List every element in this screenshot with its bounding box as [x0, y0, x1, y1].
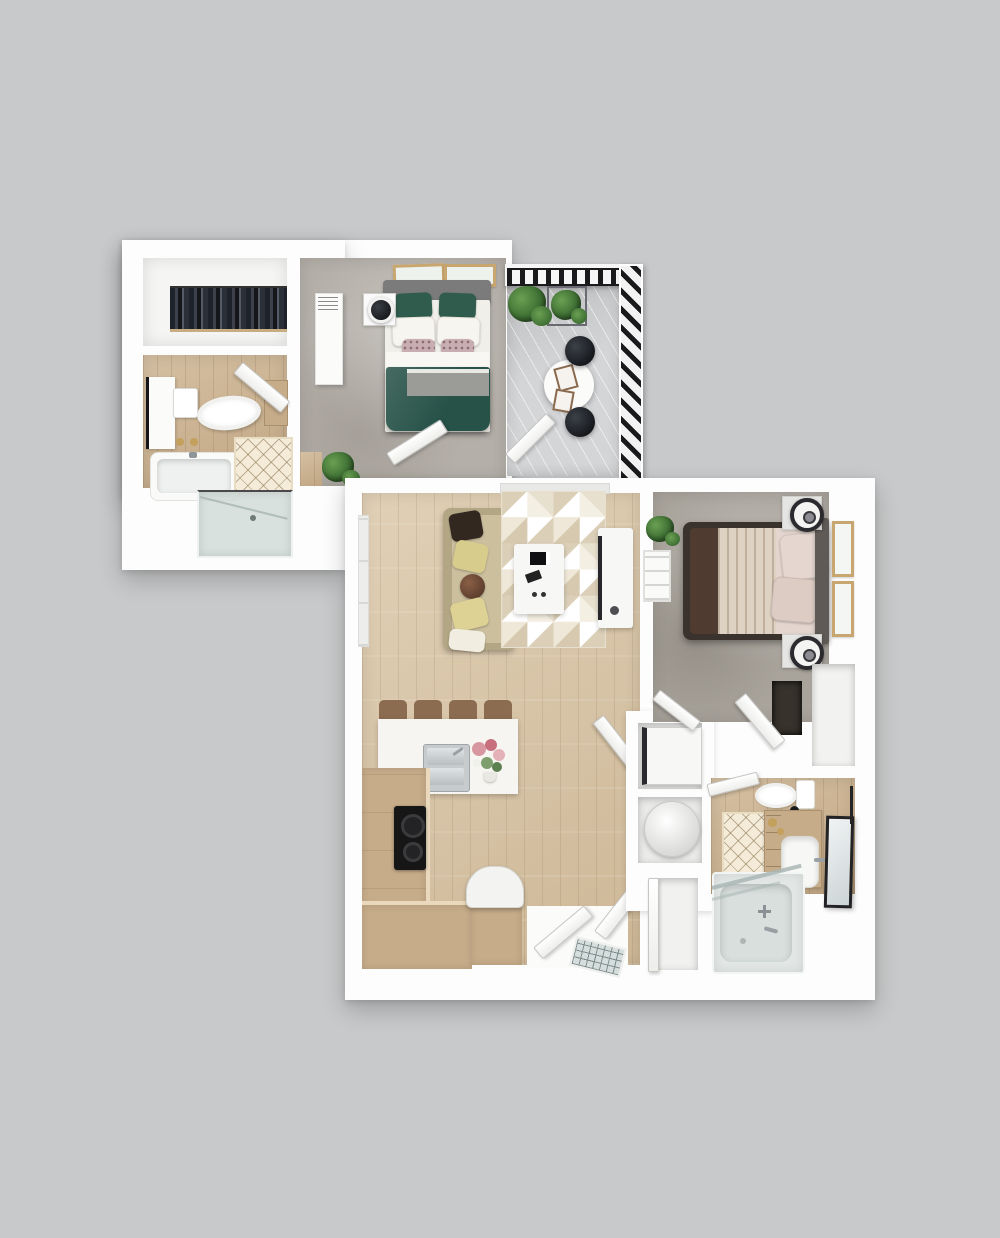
- leaning-mirror: [824, 816, 854, 909]
- toilet-tank: [796, 780, 815, 809]
- console-knob: [610, 606, 619, 615]
- pleated-blanket: [718, 528, 780, 634]
- floor-plan-canvas: [0, 0, 1000, 1238]
- diamond-rug: [722, 812, 770, 876]
- counter-stub: [470, 906, 522, 965]
- cooktop-burner: [401, 814, 425, 838]
- towel-bar: [850, 786, 853, 824]
- vase: [484, 772, 496, 782]
- main-unit: [0, 0, 1000, 1238]
- refrigerator: [466, 866, 524, 908]
- tub-drain: [740, 938, 746, 944]
- closet-niche: [772, 681, 802, 735]
- coat-closet-door: [648, 878, 659, 972]
- sink-faucet: [814, 858, 825, 862]
- bedroom-plant: [646, 516, 674, 542]
- tub-faucet-handle: [763, 905, 766, 918]
- bed-pillow: [770, 576, 820, 624]
- soap-dish: [777, 828, 784, 835]
- toilet-bowl: [755, 783, 797, 808]
- flower-bouquet: [472, 742, 486, 756]
- bedroom-alcove: [812, 664, 855, 766]
- sink-basin: [427, 768, 464, 785]
- water-heater: [644, 801, 700, 857]
- ladder-shelf: [643, 550, 671, 602]
- washer: [642, 727, 702, 785]
- tv: [598, 536, 602, 620]
- throw-pillow-round: [460, 574, 485, 599]
- throw-pillow-dark: [448, 509, 484, 542]
- wall-art: [832, 521, 854, 577]
- wall-art: [832, 581, 854, 637]
- table-knob: [541, 592, 546, 597]
- throw-pillow-white: [448, 628, 486, 653]
- remote: [530, 552, 550, 565]
- nightstand-lamp: [790, 498, 824, 532]
- kitchen-counter-bottom: [362, 901, 472, 969]
- soap-dish: [768, 818, 777, 827]
- headboard: [815, 518, 829, 644]
- cooktop-burner: [403, 842, 423, 862]
- window-wall: [358, 515, 369, 647]
- table-knob: [532, 592, 537, 597]
